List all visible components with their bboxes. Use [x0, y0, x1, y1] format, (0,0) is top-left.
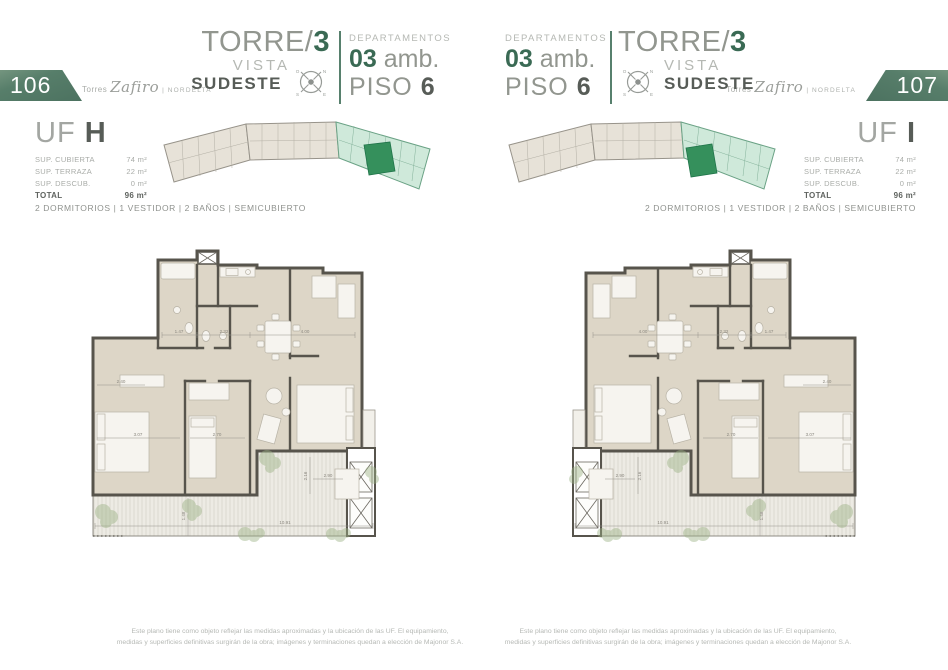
- svg-text:S: S: [296, 92, 299, 97]
- svg-text:2.70: 2.70: [727, 432, 736, 437]
- page-number: 106: [10, 72, 51, 99]
- title-block: TORRE/3 VISTA SUDESTE: [618, 28, 768, 94]
- page-left: 106 TorresZafiro| NORDELTA TORRE/3 VISTA…: [0, 0, 474, 670]
- direction-label: SUDESTE: [618, 74, 768, 94]
- surface-row: SUP. CUBIERTA74 m²: [35, 154, 147, 166]
- uf-title: UF I: [804, 118, 916, 148]
- surface-row: SUP. DESCUB.0 m²: [35, 178, 147, 190]
- piso-number: 6: [577, 73, 592, 101]
- disclaimer-line2: medidas y superficies definitivas surgir…: [90, 638, 490, 649]
- svg-text:2.32: 2.32: [220, 329, 229, 334]
- svg-text:2.90: 2.90: [616, 473, 625, 478]
- svg-text:1.48: 1.48: [181, 511, 186, 520]
- header-divider: [610, 31, 612, 104]
- svg-text:1.47: 1.47: [175, 329, 184, 334]
- keyplan-diagram: [158, 110, 446, 196]
- svg-text:2.32: 2.32: [720, 329, 729, 334]
- amb-line: 03 amb.: [349, 45, 451, 73]
- svg-text:2.70: 2.70: [213, 432, 222, 437]
- svg-text:1.47: 1.47: [765, 329, 774, 334]
- torre-number: 3: [730, 26, 747, 58]
- page-right: 107 TorresZafiro| NORDELTA DEPARTAMENTOS…: [474, 0, 948, 670]
- surface-row-total: TOTAL96 m²: [804, 190, 916, 202]
- amb-suffix: amb.: [377, 45, 440, 73]
- disclaimer-line1: Este plano tiene como objeto reflejar la…: [90, 627, 490, 638]
- svg-text:2.40: 2.40: [117, 379, 126, 384]
- keyplan-diagram: [503, 110, 791, 196]
- vista-label: VISTA: [618, 57, 768, 74]
- floorplan: 1.47 2.32 4.00 2.40 3.07 2.70 2.90 2.16 …: [85, 248, 397, 566]
- torre-title: TORRE/3: [618, 28, 768, 57]
- piso-label: PISO: [505, 73, 577, 101]
- uf-label: UF: [35, 117, 85, 149]
- amb-suffix: amb.: [533, 45, 596, 73]
- amb-number: 03: [349, 45, 377, 73]
- departamentos-label: DEPARTAMENTOS: [505, 33, 607, 45]
- svg-text:2.16: 2.16: [303, 471, 308, 480]
- keyplan-highlighted-unit: [686, 144, 717, 177]
- svg-text:N: N: [323, 69, 326, 74]
- svg-text:3.07: 3.07: [806, 432, 815, 437]
- header-divider: [339, 31, 341, 104]
- piso-number: 6: [421, 73, 436, 101]
- uf-letter: I: [907, 117, 916, 149]
- svg-text:O: O: [296, 69, 300, 74]
- surface-row: SUP. TERRAZA22 m²: [804, 166, 916, 178]
- surface-table: SUP. CUBIERTA74 m² SUP. TERRAZA22 m² SUP…: [804, 154, 916, 202]
- svg-text:1.48: 1.48: [759, 511, 764, 520]
- departamentos-block: DEPARTAMENTOS 03 amb. PISO 6: [505, 33, 607, 101]
- svg-text:4.00: 4.00: [639, 329, 648, 334]
- svg-text:3.07: 3.07: [134, 432, 143, 437]
- brand-location: NORDELTA: [812, 87, 856, 94]
- surface-row: SUP. DESCUB.0 m²: [804, 178, 916, 190]
- brand-prefix: Torres: [82, 85, 107, 94]
- disclaimer-line1: Este plano tiene como objeto reflejar la…: [478, 627, 878, 638]
- piso-line: PISO 6: [505, 73, 607, 101]
- svg-text:10.91: 10.91: [657, 520, 669, 525]
- uf-letter: H: [85, 117, 107, 149]
- svg-text:2.16: 2.16: [637, 471, 642, 480]
- page-number-badge: 106: [0, 70, 82, 101]
- svg-text:4.00: 4.00: [301, 329, 310, 334]
- keyplan-highlighted-unit: [364, 142, 395, 175]
- surface-row: SUP. TERRAZA22 m²: [35, 166, 147, 178]
- amb-number: 03: [505, 45, 533, 73]
- uf-title: UF H: [35, 118, 147, 148]
- surface-row-total: TOTAL96 m²: [35, 190, 147, 202]
- svg-text:10.91: 10.91: [279, 520, 291, 525]
- uf-info-block: UF H SUP. CUBIERTA74 m² SUP. TERRAZA22 m…: [35, 118, 147, 202]
- brand-sep: |: [806, 87, 809, 94]
- program-line: 2 DORMITORIOS | 1 VESTIDOR | 2 BAÑOS | S…: [35, 203, 306, 213]
- disclaimer: Este plano tiene como objeto reflejar la…: [90, 627, 490, 648]
- surface-table: SUP. CUBIERTA74 m² SUP. TERRAZA22 m² SUP…: [35, 154, 147, 202]
- amb-line: 03 amb.: [505, 45, 607, 73]
- torre-number: 3: [313, 26, 330, 58]
- uf-info-block: UF I SUP. CUBIERTA74 m² SUP. TERRAZA22 m…: [804, 118, 916, 202]
- page-number-badge: 107: [866, 70, 948, 101]
- compass-icon: O N S E: [293, 64, 329, 100]
- torre-prefix: TORRE/: [618, 26, 730, 58]
- uf-label: UF: [857, 117, 907, 149]
- brand-sep: |: [162, 87, 165, 94]
- svg-text:2.90: 2.90: [324, 473, 333, 478]
- svg-text:2.40: 2.40: [823, 379, 832, 384]
- disclaimer: Este plano tiene como objeto reflejar la…: [478, 627, 878, 648]
- floorplan: 1.47 2.32 4.00 2.40 3.07 2.70 2.90 2.16 …: [551, 248, 863, 566]
- departamentos-label: DEPARTAMENTOS: [349, 33, 451, 45]
- piso-line: PISO 6: [349, 73, 451, 101]
- svg-text:E: E: [323, 92, 326, 97]
- page-number: 107: [897, 72, 938, 99]
- torre-title: TORRE/3: [185, 28, 330, 57]
- surface-row: SUP. CUBIERTA74 m²: [804, 154, 916, 166]
- brand-name: Zafiro: [110, 78, 159, 96]
- torre-prefix: TORRE/: [201, 26, 313, 58]
- departamentos-block: DEPARTAMENTOS 03 amb. PISO 6: [349, 33, 451, 101]
- piso-label: PISO: [349, 73, 421, 101]
- program-line: 2 DORMITORIOS | 1 VESTIDOR | 2 BAÑOS | S…: [645, 203, 916, 213]
- disclaimer-line2: medidas y superficies definitivas surgir…: [478, 638, 878, 649]
